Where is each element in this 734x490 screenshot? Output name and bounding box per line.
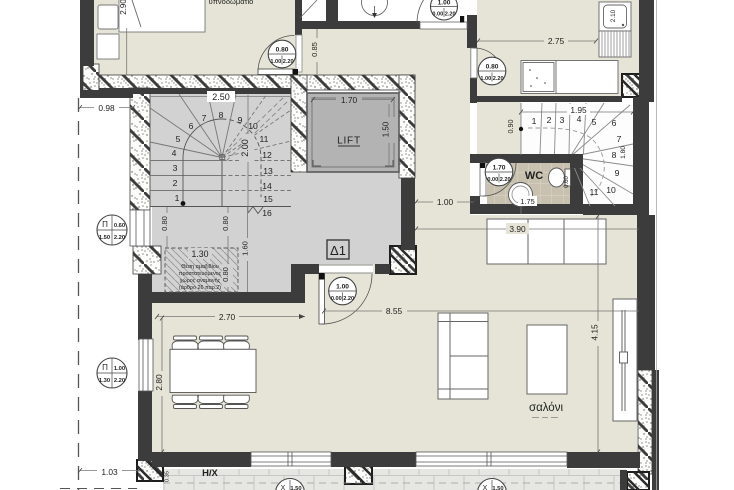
svg-text:υπνοδωμάτιο: υπνοδωμάτιο (209, 0, 254, 6)
svg-text:(άρθρο 26 παρ.2): (άρθρο 26 παρ.2) (179, 284, 221, 291)
svg-text:5: 5 (176, 134, 181, 144)
svg-text:1.00: 1.00 (114, 366, 125, 372)
svg-text:7: 7 (617, 134, 622, 144)
svg-text:2.20: 2.20 (114, 235, 125, 241)
svg-text:Θέση αμαξιδίου: Θέση αμαξιδίου (181, 263, 219, 270)
svg-text:12: 12 (262, 150, 272, 160)
svg-text:1.30: 1.30 (191, 249, 208, 259)
svg-text:1.00 2.20: 1.00 2.20 (270, 59, 293, 65)
svg-text:1.50: 1.50 (382, 121, 391, 137)
svg-text:5: 5 (592, 117, 597, 127)
svg-text:σαλόνι: σαλόνι (529, 402, 563, 414)
svg-text:Χ: Χ (483, 485, 488, 490)
svg-text:2.50: 2.50 (212, 92, 230, 102)
svg-text:4: 4 (577, 114, 582, 124)
svg-text:0.85: 0.85 (310, 42, 319, 57)
svg-text:1.00 2.20: 1.00 2.20 (480, 76, 503, 82)
svg-text:2: 2 (547, 115, 552, 125)
svg-text:0.80: 0.80 (486, 64, 499, 71)
svg-text:7: 7 (202, 113, 207, 123)
svg-text:9: 9 (238, 115, 243, 125)
svg-text:1.50: 1.50 (99, 235, 110, 241)
svg-text:LIFT: LIFT (337, 136, 361, 147)
svg-text:4: 4 (172, 148, 177, 158)
svg-text:10: 10 (606, 185, 616, 195)
svg-text:0.00 2.20: 0.00 2.20 (432, 12, 455, 18)
svg-text:1.60: 1.60 (241, 241, 250, 256)
svg-text:8: 8 (612, 150, 617, 160)
svg-text:2.75: 2.75 (548, 36, 565, 46)
svg-text:1.80: 1.80 (620, 146, 627, 159)
svg-text:10: 10 (248, 121, 258, 131)
svg-text:8: 8 (219, 110, 224, 120)
svg-text:2: 2 (173, 178, 178, 188)
svg-text:0.98: 0.98 (98, 103, 115, 113)
svg-text:1.70: 1.70 (493, 165, 506, 172)
svg-text:Π: Π (102, 220, 108, 229)
svg-text:2.00: 2.00 (240, 139, 250, 157)
svg-text:0.00 2.20: 0.00 2.20 (487, 177, 510, 183)
svg-text:0.60: 0.60 (564, 176, 570, 188)
svg-text:0.80: 0.80 (160, 216, 169, 231)
svg-text:9: 9 (615, 168, 620, 178)
svg-text:2.90: 2.90 (119, 0, 128, 15)
svg-text:0.60: 0.60 (114, 223, 125, 229)
svg-text:6: 6 (612, 118, 617, 128)
svg-text:16: 16 (262, 208, 272, 218)
svg-text:0.35: 0.35 (165, 471, 171, 482)
svg-text:4.15: 4.15 (590, 324, 600, 341)
svg-text:1.00: 1.00 (437, 197, 454, 207)
svg-text:3.90: 3.90 (509, 224, 526, 234)
svg-text:0.80: 0.80 (221, 267, 230, 282)
svg-text:WC: WC (525, 170, 543, 182)
svg-text:2.70: 2.70 (219, 312, 236, 322)
svg-text:13: 13 (263, 166, 273, 176)
svg-text:1.50: 1.50 (492, 486, 503, 490)
svg-text:0.00 2.20: 0.00 2.20 (331, 296, 354, 302)
svg-text:Χ: Χ (281, 485, 286, 490)
svg-text:11: 11 (590, 187, 599, 197)
svg-text:0.90: 0.90 (506, 120, 515, 134)
svg-text:Η/Χ: Η/Χ (202, 467, 218, 478)
svg-text:1: 1 (532, 116, 537, 126)
svg-text:1.00: 1.00 (438, 0, 451, 7)
svg-text:3: 3 (560, 115, 565, 125)
svg-text:1.95: 1.95 (570, 105, 587, 115)
svg-text:15: 15 (263, 194, 273, 204)
svg-text:1.75: 1.75 (520, 197, 534, 206)
svg-text:6: 6 (189, 121, 194, 131)
svg-text:2.80: 2.80 (154, 374, 164, 391)
svg-text:11: 11 (260, 134, 269, 144)
svg-text:8.55: 8.55 (386, 306, 403, 316)
svg-text:2.10: 2.10 (610, 9, 617, 22)
svg-text:0.80: 0.80 (276, 47, 289, 54)
svg-text:1.70: 1.70 (341, 95, 358, 105)
svg-text:προστατευόμενος: προστατευόμενος (179, 270, 222, 277)
svg-text:2.20: 2.20 (114, 378, 125, 384)
svg-text:1.50: 1.50 (290, 486, 301, 490)
svg-text:0.80: 0.80 (221, 216, 230, 231)
svg-text:χώρος αναμονής: χώρος αναμονής (180, 277, 221, 284)
svg-text:1: 1 (175, 193, 180, 203)
svg-text:3: 3 (173, 163, 178, 173)
svg-text:14: 14 (262, 181, 272, 191)
svg-text:Π: Π (102, 363, 108, 372)
svg-text:1.03: 1.03 (101, 467, 118, 477)
svg-text:1.30: 1.30 (99, 378, 110, 384)
svg-text:Δ1: Δ1 (330, 243, 346, 258)
svg-text:1.00: 1.00 (336, 284, 349, 291)
